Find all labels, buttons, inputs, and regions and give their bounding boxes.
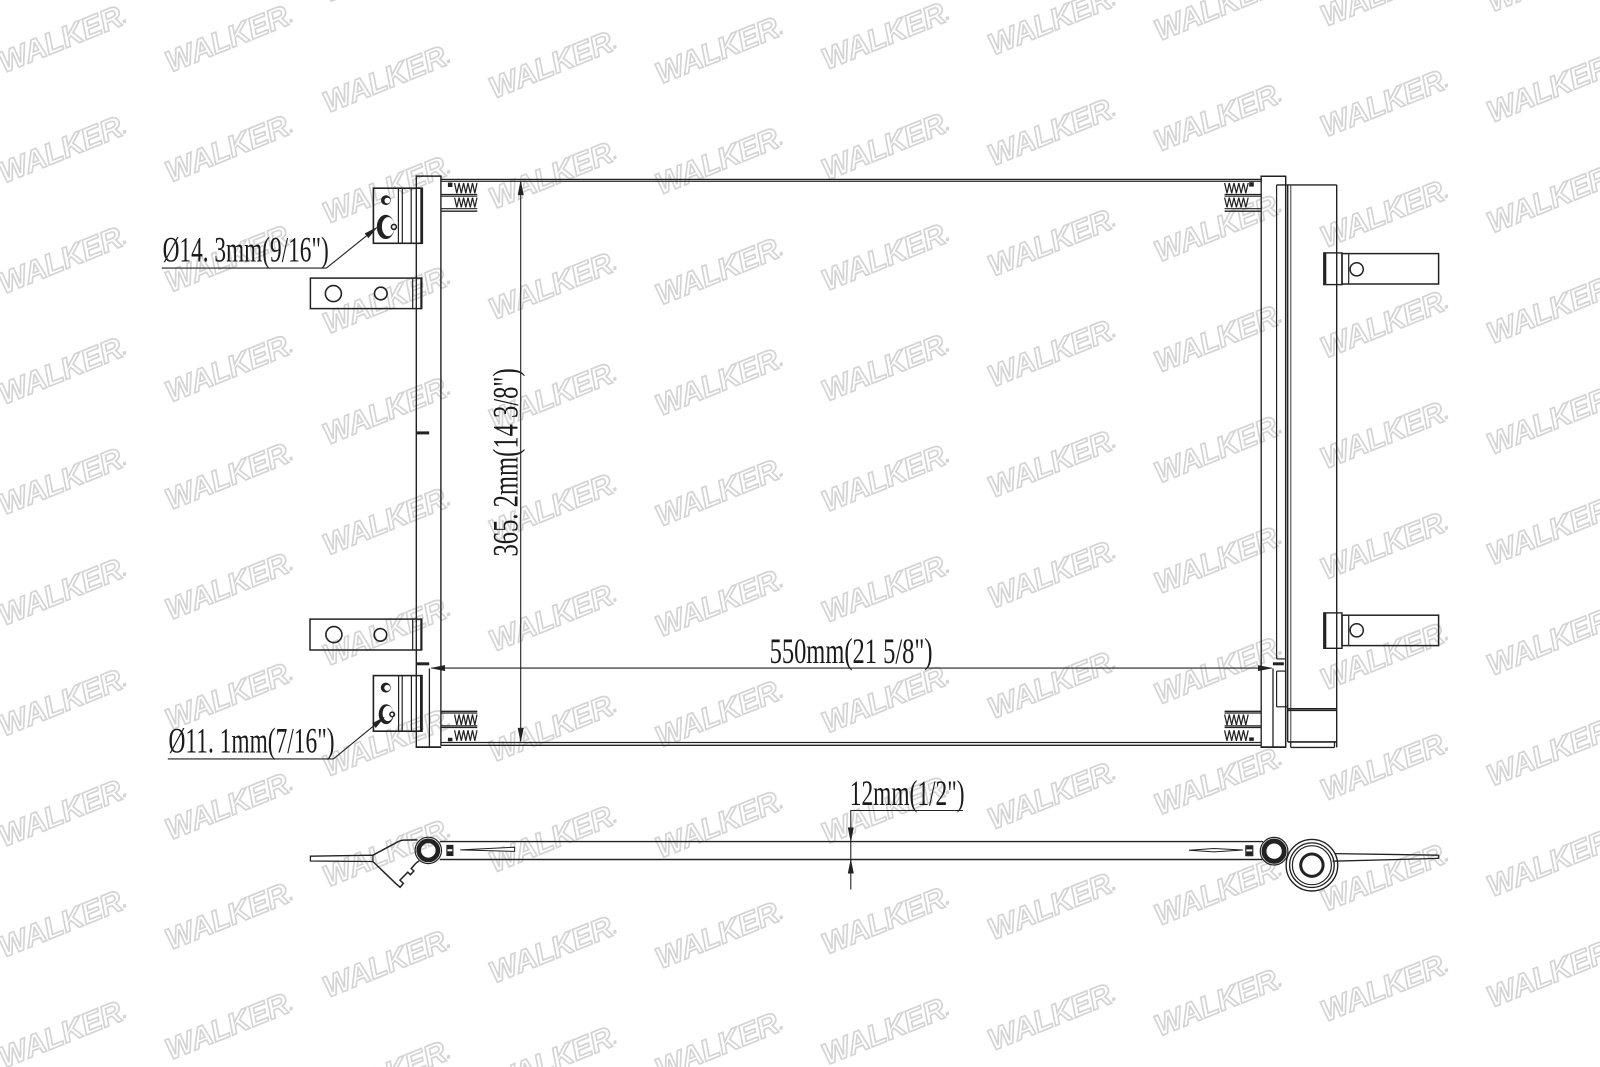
svg-text:Ø11. 1mm(7/16"): Ø11. 1mm(7/16"): [169, 720, 335, 760]
svg-text:Ø14. 3mm(9/16"): Ø14. 3mm(9/16"): [163, 229, 329, 269]
svg-text:12mm(1/2"): 12mm(1/2"): [850, 773, 965, 813]
svg-text:550mm(21 5/8"): 550mm(21 5/8"): [770, 631, 933, 671]
svg-text:365. 2mm(14 3/8"): 365. 2mm(14 3/8"): [486, 368, 526, 556]
